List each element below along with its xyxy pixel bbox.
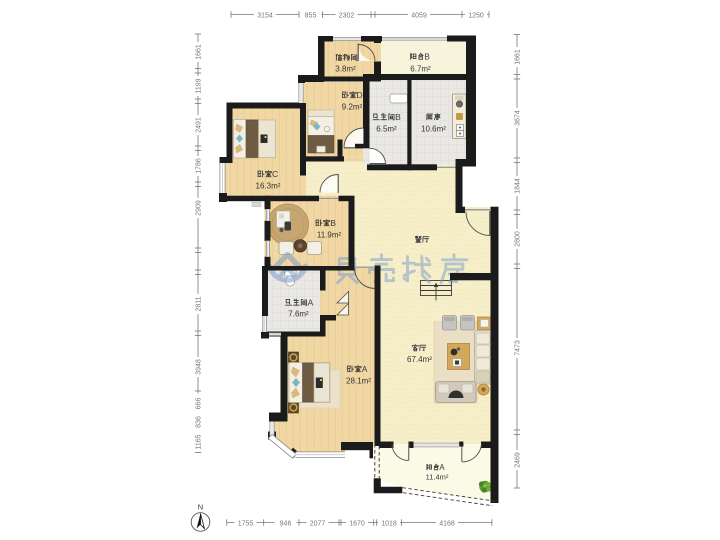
svg-text:D: D bbox=[357, 90, 363, 100]
svg-text:4059: 4059 bbox=[411, 12, 427, 19]
svg-text:B: B bbox=[395, 112, 401, 122]
svg-text:A: A bbox=[308, 298, 314, 308]
svg-text:1755: 1755 bbox=[238, 520, 254, 527]
svg-text:2909: 2909 bbox=[196, 200, 203, 216]
svg-text:2469: 2469 bbox=[515, 452, 522, 468]
svg-text:C: C bbox=[272, 169, 278, 179]
svg-text:1165: 1165 bbox=[196, 434, 203, 449]
svg-text:28.1m²: 28.1m² bbox=[346, 377, 371, 386]
svg-text:3674: 3674 bbox=[515, 110, 522, 126]
svg-text:67.4m²: 67.4m² bbox=[407, 355, 432, 364]
svg-text:1786: 1786 bbox=[196, 158, 203, 174]
svg-text:7.6m²: 7.6m² bbox=[288, 310, 309, 319]
svg-text:16.3m²: 16.3m² bbox=[256, 182, 281, 191]
svg-text:946: 946 bbox=[280, 520, 292, 527]
svg-text:3154: 3154 bbox=[257, 12, 273, 19]
svg-text:666: 666 bbox=[196, 398, 203, 410]
svg-text:3948: 3948 bbox=[196, 359, 203, 375]
svg-text:1018: 1018 bbox=[381, 520, 397, 527]
svg-text:N: N bbox=[198, 503, 203, 512]
svg-text:A: A bbox=[362, 364, 368, 374]
svg-text:6.7m²: 6.7m² bbox=[410, 65, 431, 74]
svg-text:2077: 2077 bbox=[310, 520, 326, 527]
svg-text:11.4m²: 11.4m² bbox=[426, 473, 449, 482]
svg-text:9.2m²: 9.2m² bbox=[342, 103, 363, 112]
svg-text:1661: 1661 bbox=[515, 49, 522, 65]
svg-text:10.6m²: 10.6m² bbox=[421, 125, 446, 134]
svg-text:A: A bbox=[439, 463, 445, 472]
svg-text:2800: 2800 bbox=[515, 231, 522, 247]
svg-text:3.8m²: 3.8m² bbox=[335, 65, 356, 74]
svg-text:1670: 1670 bbox=[349, 520, 365, 527]
svg-text:2811: 2811 bbox=[196, 296, 203, 311]
svg-text:1844: 1844 bbox=[515, 178, 522, 194]
svg-text:11.9m²: 11.9m² bbox=[317, 231, 342, 240]
svg-text:1199: 1199 bbox=[196, 78, 203, 93]
svg-text:B: B bbox=[330, 218, 336, 228]
svg-text:7473: 7473 bbox=[515, 340, 522, 356]
svg-text:6.5m²: 6.5m² bbox=[376, 125, 397, 134]
svg-text:1250: 1250 bbox=[468, 12, 484, 19]
svg-text:2491: 2491 bbox=[196, 117, 203, 133]
svg-text:855: 855 bbox=[305, 12, 317, 19]
svg-text:836: 836 bbox=[196, 416, 203, 428]
svg-text:2302: 2302 bbox=[339, 12, 355, 19]
svg-text:4168: 4168 bbox=[439, 520, 455, 527]
svg-text:B: B bbox=[424, 52, 430, 62]
svg-text:1661: 1661 bbox=[196, 44, 203, 60]
